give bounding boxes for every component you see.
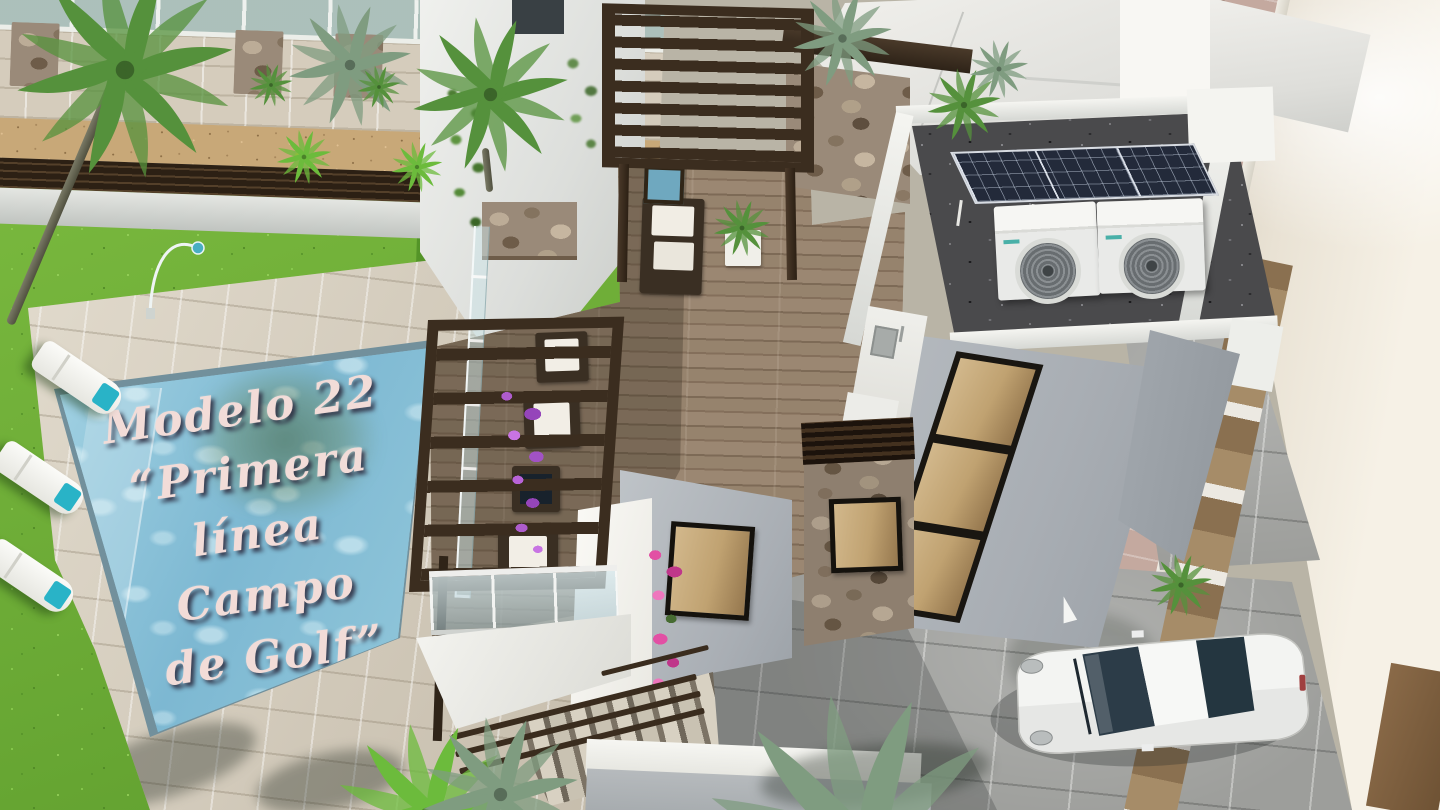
ac-unit-2 [1096,198,1205,294]
patio-shrub [1148,552,1214,618]
window-1 [936,358,1036,446]
pergola-leg [785,168,797,280]
car [985,616,1320,782]
garden-palm [968,38,1030,100]
solar-panel-array [950,143,1219,204]
gravel-plant [390,140,444,194]
ac-unit-1 [994,201,1101,300]
glass-coffee-table [643,165,684,204]
sofa-cushion [653,241,694,270]
pergola-upper [602,3,814,173]
palm-tree-large [10,0,240,185]
bougainvillea-purple [492,382,566,560]
potted-plant [356,64,402,110]
gravel-plant [275,128,333,186]
potted-plant [248,62,294,108]
sink [870,325,899,359]
roof-corner-wall [1187,87,1276,164]
villa-aerial-render: Modelo 22 “Primera línea Campo de Golf” [0,0,1440,810]
entrance-slats [801,417,915,465]
sofa-cushion [651,205,694,236]
pergola-leg [617,164,629,282]
garden-sprinkler [142,222,212,322]
stone-pillar [482,202,577,260]
garden-palm [790,0,895,91]
palm-tree-bottom [695,685,1025,810]
planter-plant [712,198,772,258]
stair-palm [418,712,583,810]
outdoor-sofa [639,197,704,295]
window-2 [908,443,1008,531]
faucet [899,326,905,342]
entrance-window [829,497,904,573]
